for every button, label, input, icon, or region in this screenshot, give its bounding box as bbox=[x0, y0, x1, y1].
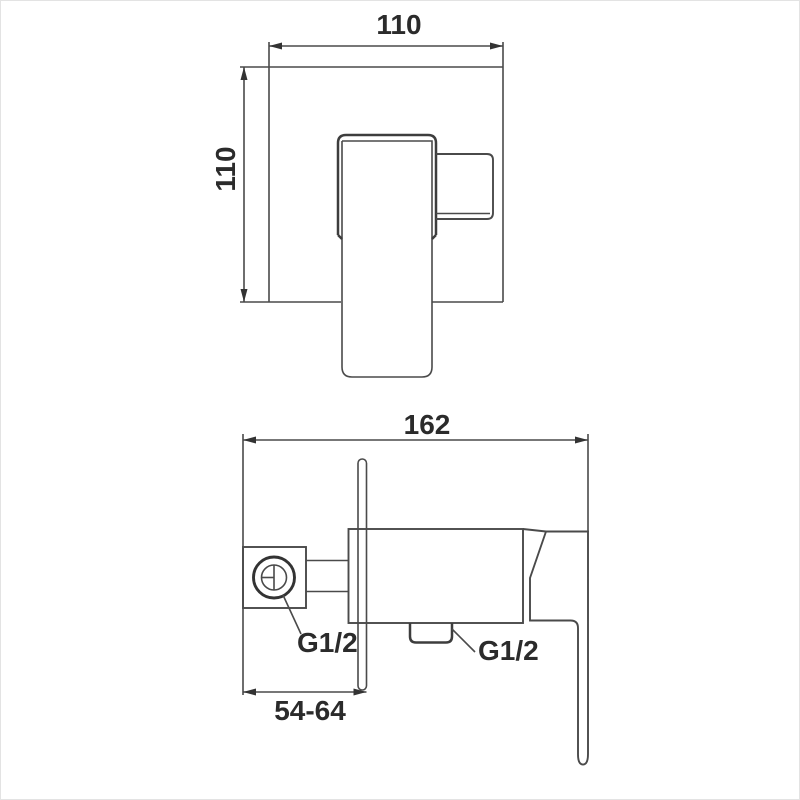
arrowhead-left bbox=[269, 43, 282, 50]
drawing-canvas: 110 110 162 bbox=[1, 1, 799, 799]
arrowhead-right bbox=[490, 43, 503, 50]
inlet-thread-label: G1/2 bbox=[297, 627, 358, 658]
technical-drawing-page: 110 110 162 bbox=[0, 0, 800, 800]
lever-outer-outline bbox=[338, 135, 436, 235]
arrowhead-left bbox=[243, 437, 256, 444]
lever-side-knob bbox=[436, 154, 493, 219]
callout-outlet-thread: G1/2 bbox=[452, 629, 539, 666]
arrowhead-bottom bbox=[241, 289, 248, 302]
wall-plate-edge bbox=[358, 459, 367, 690]
side-depth-label: 162 bbox=[404, 409, 451, 440]
callout-inlet-thread: G1/2 bbox=[283, 595, 358, 658]
lever-inner-outline bbox=[342, 141, 432, 377]
arrowhead-top bbox=[241, 67, 248, 80]
dimension-front-height: 110 bbox=[210, 67, 248, 302]
leader-line bbox=[452, 629, 475, 652]
valve-body bbox=[349, 529, 524, 623]
front-faceplate bbox=[240, 42, 503, 302]
outlet-thread-label: G1/2 bbox=[478, 635, 539, 666]
front-lever-handle bbox=[338, 135, 493, 377]
side-view: 162 G1/2 G1/2 bbox=[243, 409, 588, 765]
front-height-label: 110 bbox=[210, 146, 241, 191]
dimension-front-width: 110 bbox=[269, 9, 503, 50]
wall-distance-label: 54-64 bbox=[274, 695, 346, 726]
dimension-wall-distance: 54-64 bbox=[243, 689, 367, 727]
arrowhead-right bbox=[575, 437, 588, 444]
outlet-port bbox=[410, 623, 452, 643]
arrowhead-left bbox=[243, 689, 256, 696]
inlet-connector bbox=[243, 547, 349, 608]
front-width-label: 110 bbox=[376, 9, 421, 40]
front-view: 110 110 bbox=[210, 9, 503, 377]
